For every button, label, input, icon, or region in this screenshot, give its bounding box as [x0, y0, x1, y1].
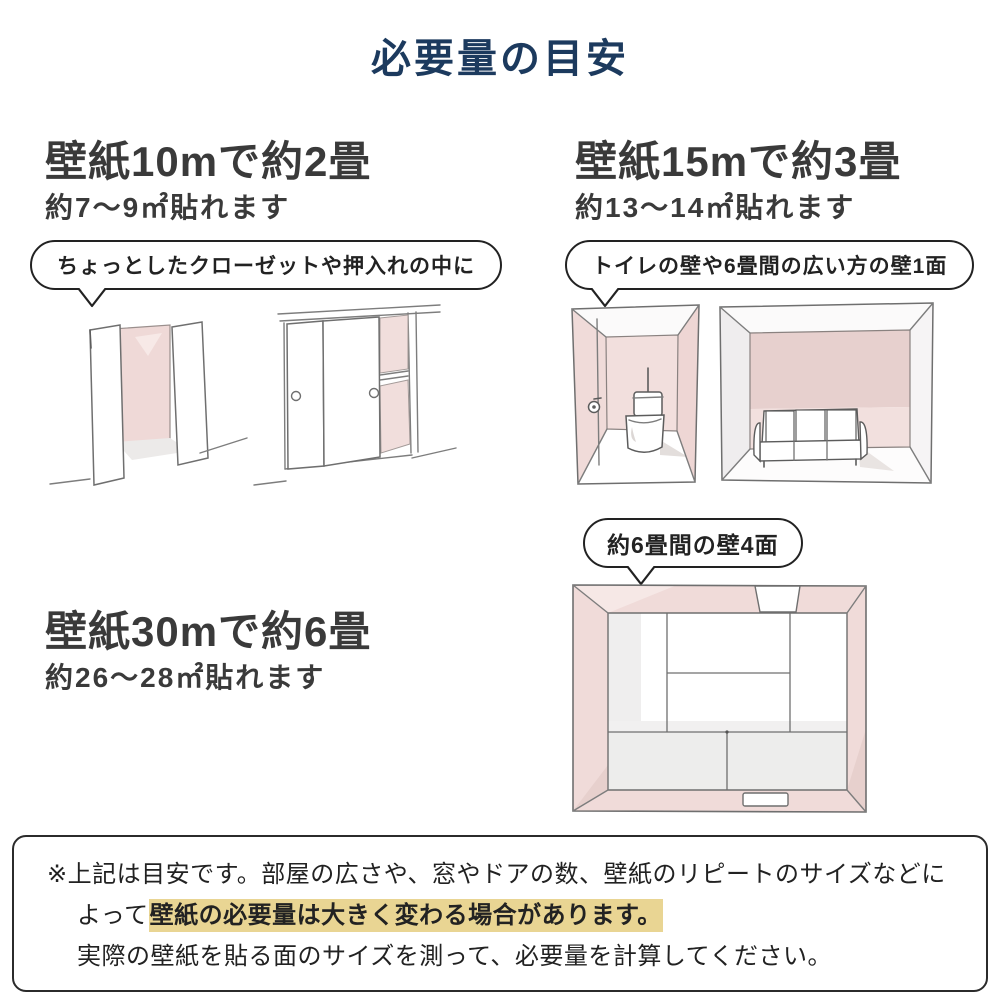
note-line-3: 実際の壁紙を貼る面のサイズを測って、必要量を計算してください。: [47, 936, 966, 977]
room-illustrations: [560, 295, 980, 500]
section-10m-heading: 壁紙10mで約2畳: [45, 128, 371, 189]
sofa-room-illustration: [720, 303, 933, 483]
sliding-door-closet-illustration: [254, 305, 456, 485]
room-door-top: [755, 586, 800, 612]
note-line-2: よって壁紙の必要量は大きく変わる場合があります。: [47, 895, 966, 936]
note-line-1: ※上記は目安です。部屋の広さや、窓やドアの数、壁紙のリピートのサイズなどに: [47, 854, 966, 895]
room-door-bottom: [743, 793, 788, 806]
section-15m-bubble: トイレの壁や6畳間の広い方の壁1面: [565, 240, 974, 290]
section-15m-subheading: 約13〜14㎡貼れます: [575, 186, 855, 226]
section-10m-bubble-label: ちょっとしたクローゼットや押入れの中に: [57, 250, 475, 280]
section-30m-subheading: 約26〜28㎡貼れます: [45, 656, 325, 696]
section-15m-heading: 壁紙15mで約3畳: [575, 128, 901, 189]
section-30m-heading: 壁紙30mで約6畳: [45, 598, 371, 659]
note-box: ※上記は目安です。部屋の広さや、窓やドアの数、壁紙のリピートのサイズなどに よっ…: [12, 835, 988, 992]
section-10m-bubble: ちょっとしたクローゼットや押入れの中に: [30, 240, 502, 290]
toilet-room-illustration: [572, 305, 699, 484]
section-15m-bubble-label: トイレの壁や6畳間の広い方の壁1面: [592, 250, 947, 280]
six-tatami-room-illustration: [567, 581, 873, 817]
page-title: 必要量の目安: [0, 26, 1000, 84]
open-closet-illustration: [50, 322, 247, 485]
closet-illustrations: [40, 292, 520, 517]
section-10m-subheading: 約7〜9㎡貼れます: [45, 186, 290, 226]
section-30m-bubble: 約6畳間の壁4面: [583, 518, 803, 568]
note-highlight: 壁紙の必要量は大きく変わる場合があります。: [149, 899, 663, 932]
section-30m-bubble-label: 約6畳間の壁4面: [607, 526, 779, 560]
sofa: [754, 409, 867, 467]
